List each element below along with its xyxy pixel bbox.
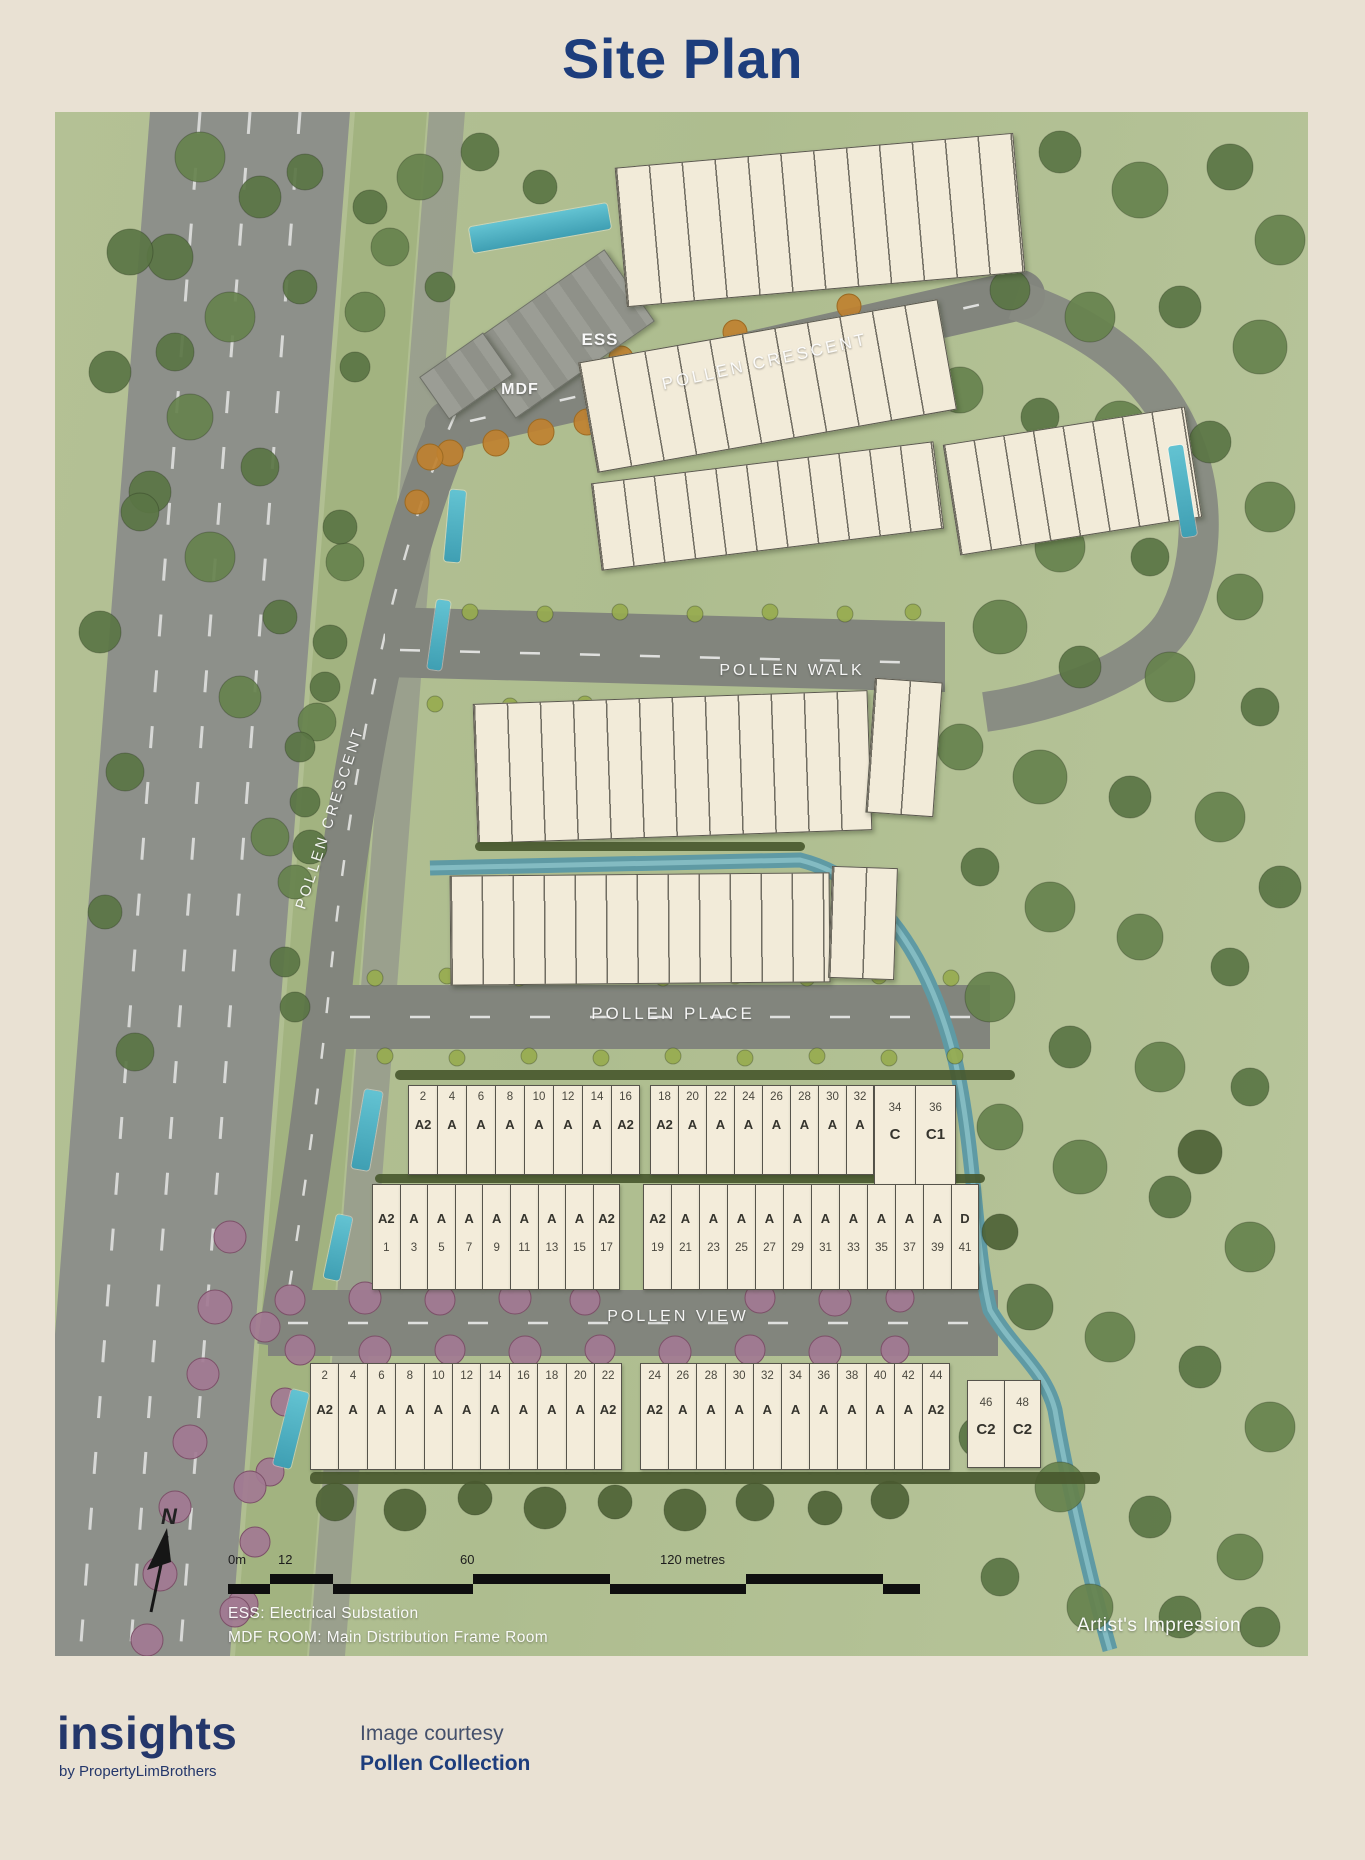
unit-lot: 14A bbox=[582, 1085, 611, 1175]
unit-lot: 26A bbox=[668, 1363, 696, 1470]
unit-type: A bbox=[447, 1117, 456, 1132]
unit-type: A bbox=[409, 1211, 418, 1226]
unit-number: 1 bbox=[383, 1242, 389, 1254]
unit-lot: 12A bbox=[553, 1085, 582, 1175]
unit-number: 11 bbox=[518, 1242, 530, 1254]
unit-number: 24 bbox=[648, 1370, 661, 1382]
unit-lot: 28A bbox=[790, 1085, 818, 1175]
image-courtesy-source: Pollen Collection bbox=[360, 1752, 530, 1776]
unit-type: A2 bbox=[617, 1117, 634, 1132]
scale-label-12: 12 bbox=[278, 1552, 292, 1567]
unit-type: A bbox=[855, 1117, 864, 1132]
unit-type: A bbox=[547, 1211, 556, 1226]
unit-number: 24 bbox=[742, 1091, 755, 1103]
unit-number: 4 bbox=[350, 1370, 356, 1382]
unit-number: 37 bbox=[903, 1242, 916, 1254]
unit-type: A bbox=[821, 1211, 830, 1226]
unit-number: 20 bbox=[686, 1091, 699, 1103]
unit-lot: 8A bbox=[495, 1085, 524, 1175]
unit-number: 39 bbox=[931, 1242, 944, 1254]
unit-lot: 6A bbox=[367, 1363, 395, 1470]
unit-lot: 26A bbox=[762, 1085, 790, 1175]
unit-number: 32 bbox=[761, 1370, 774, 1382]
unit-type: C2 bbox=[1013, 1421, 1032, 1438]
insights-logo: insights bbox=[57, 1706, 237, 1760]
unit-lot: 30A bbox=[725, 1363, 753, 1470]
unit-type: C bbox=[890, 1126, 901, 1143]
unit-number: 22 bbox=[714, 1091, 727, 1103]
block-c2: 46C248C2 bbox=[967, 1380, 1041, 1468]
unit-lot: 22A bbox=[706, 1085, 734, 1175]
unit-type: A bbox=[464, 1211, 473, 1226]
unit-type: A bbox=[492, 1211, 501, 1226]
unit-type: A bbox=[904, 1402, 913, 1417]
unit-number: 31 bbox=[819, 1242, 832, 1254]
unit-type: A bbox=[800, 1117, 809, 1132]
unit-number: 15 bbox=[573, 1242, 586, 1254]
block-mid-odd-west: 1A23A5A7A9A11A13A15A17A2 bbox=[372, 1184, 620, 1290]
unit-lot: 46C2 bbox=[967, 1380, 1004, 1468]
unit-type: A bbox=[405, 1402, 414, 1417]
unit-type: A bbox=[744, 1117, 753, 1132]
unit-lot: 11A bbox=[510, 1184, 538, 1290]
unit-number: 17 bbox=[600, 1242, 613, 1254]
hedge bbox=[310, 1472, 1100, 1484]
unit-lot: 31A bbox=[811, 1184, 839, 1290]
legend-mdf: MDF ROOM: Main Distribution Frame Room bbox=[228, 1626, 548, 1650]
north-arrow-icon bbox=[137, 1526, 207, 1616]
unit-type: A bbox=[547, 1402, 556, 1417]
unit-type: A bbox=[847, 1402, 856, 1417]
unit-lot: 18A bbox=[537, 1363, 565, 1470]
unit-type: A2 bbox=[598, 1211, 615, 1226]
unit-lot: 37A bbox=[895, 1184, 923, 1290]
unit-number: 41 bbox=[959, 1242, 972, 1254]
unit-number: 33 bbox=[847, 1242, 860, 1254]
unit-type: A bbox=[563, 1117, 572, 1132]
street-label-pollen-view: POLLEN VIEW bbox=[607, 1308, 748, 1326]
hedge bbox=[475, 842, 805, 851]
unit-number: 36 bbox=[817, 1370, 830, 1382]
unit-number: 44 bbox=[930, 1370, 943, 1382]
unit-lot: 24A2 bbox=[640, 1363, 668, 1470]
unit-lot: 33A bbox=[839, 1184, 867, 1290]
unit-lot: 38A bbox=[837, 1363, 865, 1470]
unit-lot: 4A bbox=[437, 1085, 466, 1175]
unit-type: D bbox=[960, 1211, 969, 1226]
unit-number: 3 bbox=[411, 1242, 417, 1254]
unit-type: A bbox=[505, 1117, 514, 1132]
unit-type: A bbox=[520, 1211, 529, 1226]
unit-number: 42 bbox=[902, 1370, 915, 1382]
unit-lot: 36A bbox=[809, 1363, 837, 1470]
unit-lot: 23A bbox=[699, 1184, 727, 1290]
unit-type: A bbox=[476, 1117, 485, 1132]
unit-lot: 4A bbox=[338, 1363, 366, 1470]
unit-lot: 2A2 bbox=[310, 1363, 338, 1470]
unit-lot: 30A bbox=[818, 1085, 846, 1175]
unit-number: 48 bbox=[1016, 1397, 1029, 1409]
unit-number: 6 bbox=[378, 1370, 384, 1382]
unit-number: 10 bbox=[432, 1370, 445, 1382]
unit-number: 2 bbox=[321, 1370, 327, 1382]
unit-number: 14 bbox=[591, 1091, 604, 1103]
unit-number: 36 bbox=[929, 1102, 942, 1114]
unit-type: A2 bbox=[928, 1402, 945, 1417]
unit-type: A bbox=[933, 1211, 942, 1226]
scale-label-60: 60 bbox=[460, 1552, 474, 1567]
unit-lot: 16A2 bbox=[611, 1085, 640, 1175]
unit-number: 13 bbox=[545, 1242, 558, 1254]
unit-lot: 5A bbox=[427, 1184, 455, 1290]
unit-number: 20 bbox=[574, 1370, 587, 1382]
unit-type: A bbox=[791, 1402, 800, 1417]
image-courtesy-text: Image courtesy bbox=[360, 1722, 504, 1746]
hedge bbox=[395, 1070, 1015, 1080]
unit-type: A bbox=[737, 1211, 746, 1226]
unit-number: 7 bbox=[466, 1242, 472, 1254]
unit-type: A bbox=[678, 1402, 687, 1417]
artists-impression-note: Artist's Impression bbox=[1077, 1615, 1241, 1637]
unit-number: 38 bbox=[846, 1370, 859, 1382]
unit-number: 16 bbox=[517, 1370, 530, 1382]
block-pollen-place-even-west: 2A24A6A8A10A12A14A16A2 bbox=[408, 1085, 640, 1175]
unit-type: A bbox=[575, 1211, 584, 1226]
unit-number: 8 bbox=[407, 1370, 413, 1382]
block-pollen-place-even-east: 18A220A22A24A26A28A30A32A bbox=[650, 1085, 874, 1175]
unit-lot: 9A bbox=[482, 1184, 510, 1290]
unit-lot: 2A2 bbox=[408, 1085, 437, 1175]
unit-number: 19 bbox=[651, 1242, 664, 1254]
unit-lot: 16A bbox=[509, 1363, 537, 1470]
unit-type: A2 bbox=[646, 1402, 663, 1417]
unit-number: 28 bbox=[798, 1091, 811, 1103]
unit-lot: 42A bbox=[894, 1363, 922, 1470]
unit-lot: 6A bbox=[466, 1085, 495, 1175]
building-block bbox=[828, 866, 898, 980]
unit-lot: 27A bbox=[755, 1184, 783, 1290]
unit-lot: 13A bbox=[538, 1184, 566, 1290]
unit-lot: 24A bbox=[734, 1085, 762, 1175]
street-label-pollen-place: POLLEN PLACE bbox=[591, 1004, 755, 1024]
unit-type: A bbox=[765, 1211, 774, 1226]
unit-type: A bbox=[519, 1402, 528, 1417]
unit-type: A bbox=[734, 1402, 743, 1417]
unit-type: A bbox=[534, 1117, 543, 1132]
unit-number: 34 bbox=[889, 1102, 902, 1114]
unit-lot: 8A bbox=[395, 1363, 423, 1470]
page-title: Site Plan bbox=[0, 26, 1365, 91]
unit-number: 16 bbox=[619, 1091, 632, 1103]
street-label-pollen-walk: POLLEN WALK bbox=[719, 662, 864, 680]
unit-number: 25 bbox=[735, 1242, 748, 1254]
unit-type: C1 bbox=[926, 1126, 945, 1143]
block-pollen-view-west: 2A24A6A8A10A12A14A16A18A20A22A2 bbox=[310, 1363, 622, 1470]
unit-type: A bbox=[462, 1402, 471, 1417]
unit-lot: 36C1 bbox=[915, 1085, 956, 1191]
unit-number: 30 bbox=[733, 1370, 746, 1382]
unit-lot: 22A2 bbox=[594, 1363, 622, 1470]
unit-type: A bbox=[348, 1402, 357, 1417]
building-block bbox=[450, 872, 831, 985]
unit-number: 6 bbox=[478, 1091, 484, 1103]
unit-type: A2 bbox=[600, 1402, 617, 1417]
unit-number: 40 bbox=[874, 1370, 887, 1382]
unit-number: 22 bbox=[602, 1370, 615, 1382]
unit-lot: 34C bbox=[874, 1085, 915, 1191]
unit-number: 9 bbox=[493, 1242, 499, 1254]
unit-lot: 28A bbox=[696, 1363, 724, 1470]
unit-type: A bbox=[828, 1117, 837, 1132]
unit-type: A bbox=[706, 1402, 715, 1417]
unit-type: A bbox=[434, 1402, 443, 1417]
unit-type: A bbox=[877, 1211, 886, 1226]
unit-type: A bbox=[688, 1117, 697, 1132]
unit-type: A bbox=[681, 1211, 690, 1226]
unit-type: A bbox=[875, 1402, 884, 1417]
unit-number: 14 bbox=[489, 1370, 502, 1382]
unit-type: A bbox=[793, 1211, 802, 1226]
unit-lot: 44A2 bbox=[922, 1363, 950, 1470]
unit-type: A bbox=[849, 1211, 858, 1226]
unit-number: 29 bbox=[791, 1242, 804, 1254]
unit-lot: 10A bbox=[524, 1085, 553, 1175]
unit-lot: 25A bbox=[727, 1184, 755, 1290]
block-pollen-view-east: 24A226A28A30A32A34A36A38A40A42A44A2 bbox=[640, 1363, 950, 1470]
unit-number: 34 bbox=[789, 1370, 802, 1382]
unit-number: 27 bbox=[763, 1242, 776, 1254]
unit-type: A2 bbox=[415, 1117, 432, 1132]
unit-lot: 48C2 bbox=[1004, 1380, 1041, 1468]
unit-lot: 12A bbox=[452, 1363, 480, 1470]
unit-type: A bbox=[772, 1117, 781, 1132]
unit-number: 35 bbox=[875, 1242, 888, 1254]
unit-lot: 39A bbox=[923, 1184, 951, 1290]
block-mid-odd-east: 19A221A23A25A27A29A31A33A35A37A39A41D bbox=[643, 1184, 979, 1290]
ess-label: ESS bbox=[581, 330, 618, 350]
unit-number: 8 bbox=[507, 1091, 513, 1103]
unit-lot: 7A bbox=[455, 1184, 483, 1290]
unit-number: 10 bbox=[533, 1091, 546, 1103]
unit-lot: 17A2 bbox=[593, 1184, 621, 1290]
unit-type: A bbox=[576, 1402, 585, 1417]
unit-type: C2 bbox=[976, 1421, 995, 1438]
unit-lot: 32A bbox=[753, 1363, 781, 1470]
north-arrow: N bbox=[137, 1504, 207, 1614]
scale-label-0: 0m bbox=[228, 1552, 246, 1567]
unit-lot: 21A bbox=[671, 1184, 699, 1290]
unit-type: A bbox=[490, 1402, 499, 1417]
unit-type: A bbox=[905, 1211, 914, 1226]
unit-lot: 41D bbox=[951, 1184, 979, 1290]
unit-lot: 32A bbox=[846, 1085, 874, 1175]
unit-lot: 34A bbox=[781, 1363, 809, 1470]
unit-lot: 18A2 bbox=[650, 1085, 678, 1175]
unit-number: 2 bbox=[420, 1091, 426, 1103]
scale-bar: 0m 12 60 120 metres bbox=[228, 1552, 928, 1602]
unit-lot: 15A bbox=[565, 1184, 593, 1290]
unit-number: 4 bbox=[449, 1091, 455, 1103]
insights-logo-subtitle: by PropertyLimBrothers bbox=[59, 1763, 217, 1780]
unit-number: 18 bbox=[658, 1091, 671, 1103]
unit-number: 28 bbox=[705, 1370, 718, 1382]
unit-type: A2 bbox=[649, 1211, 666, 1226]
block-c-c1: 34C36C1 bbox=[874, 1085, 956, 1191]
unit-number: 12 bbox=[562, 1091, 575, 1103]
scale-label-120: 120 metres bbox=[660, 1552, 725, 1567]
site-plan-image: 2A24A6A8A10A12A14A16A2 18A220A22A24A26A2… bbox=[55, 112, 1308, 1656]
unit-type: A bbox=[377, 1402, 386, 1417]
unit-number: 26 bbox=[676, 1370, 689, 1382]
unit-lot: 20A bbox=[566, 1363, 594, 1470]
unit-lot: 29A bbox=[783, 1184, 811, 1290]
unit-lot: 40A bbox=[866, 1363, 894, 1470]
unit-lot: 35A bbox=[867, 1184, 895, 1290]
unit-type: A bbox=[819, 1402, 828, 1417]
unit-type: A bbox=[763, 1402, 772, 1417]
unit-type: A2 bbox=[316, 1402, 333, 1417]
unit-number: 26 bbox=[770, 1091, 783, 1103]
mdf-label: MDF bbox=[501, 381, 539, 399]
unit-number: 12 bbox=[460, 1370, 473, 1382]
unit-number: 5 bbox=[438, 1242, 444, 1254]
unit-lot: 1A2 bbox=[372, 1184, 400, 1290]
unit-lot: 14A bbox=[480, 1363, 508, 1470]
unit-number: 30 bbox=[826, 1091, 839, 1103]
building-block bbox=[473, 690, 873, 844]
unit-number: 23 bbox=[707, 1242, 720, 1254]
unit-number: 32 bbox=[854, 1091, 867, 1103]
unit-number: 18 bbox=[545, 1370, 558, 1382]
unit-lot: 3A bbox=[400, 1184, 428, 1290]
unit-type: A bbox=[709, 1211, 718, 1226]
unit-type: A2 bbox=[656, 1117, 673, 1132]
unit-number: 46 bbox=[980, 1397, 993, 1409]
unit-number: 21 bbox=[679, 1242, 692, 1254]
legend: ESS: Electrical Substation MDF ROOM: Mai… bbox=[228, 1602, 548, 1650]
unit-type: A bbox=[437, 1211, 446, 1226]
scale-bar-segments bbox=[228, 1574, 920, 1594]
unit-lot: 20A bbox=[678, 1085, 706, 1175]
unit-type: A bbox=[592, 1117, 601, 1132]
legend-ess: ESS: Electrical Substation bbox=[228, 1602, 548, 1626]
unit-type: A2 bbox=[378, 1211, 395, 1226]
unit-type: A bbox=[716, 1117, 725, 1132]
unit-lot: 10A bbox=[424, 1363, 452, 1470]
building-block bbox=[865, 678, 942, 817]
unit-lot: 19A2 bbox=[643, 1184, 671, 1290]
